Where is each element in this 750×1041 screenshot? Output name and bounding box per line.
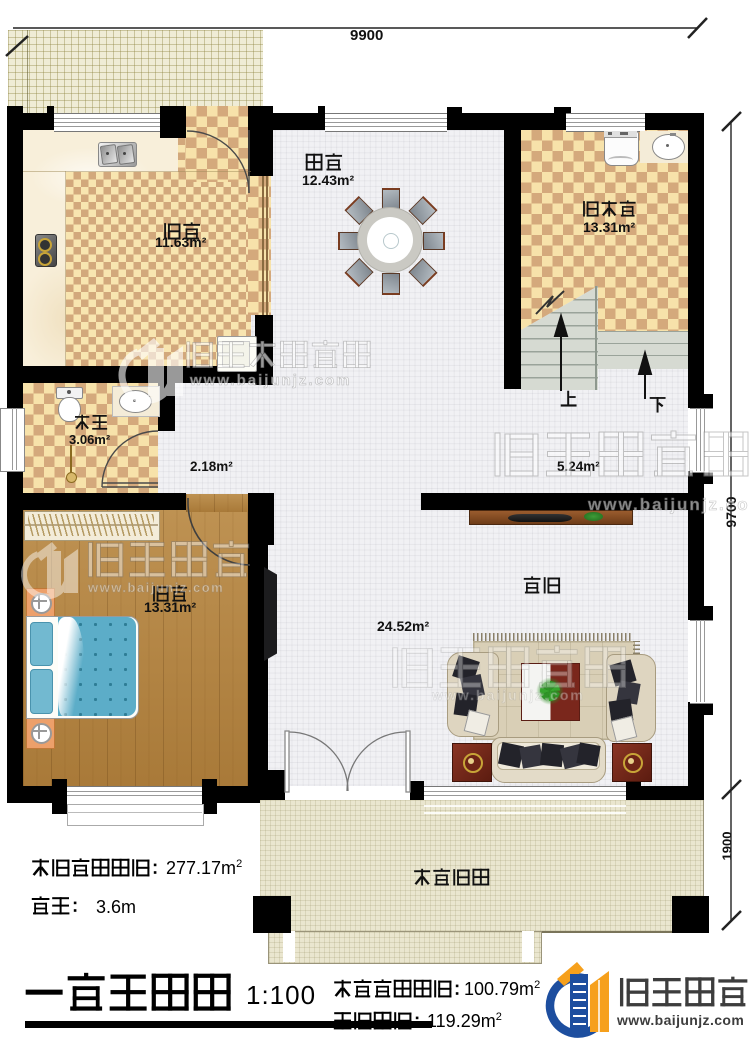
svg-text:www.baijunjz.com: www.baijunjz.com (587, 495, 750, 514)
svg-text:www.baijunjz.com: www.baijunjz.com (189, 372, 351, 389)
svg-text:www.baijunjz.com: www.baijunjz.com (431, 687, 585, 703)
svg-text:www.baijunjz.com: www.baijunjz.com (87, 580, 224, 595)
svg-text:www.baijunjz.com: www.baijunjz.com (616, 1012, 744, 1028)
